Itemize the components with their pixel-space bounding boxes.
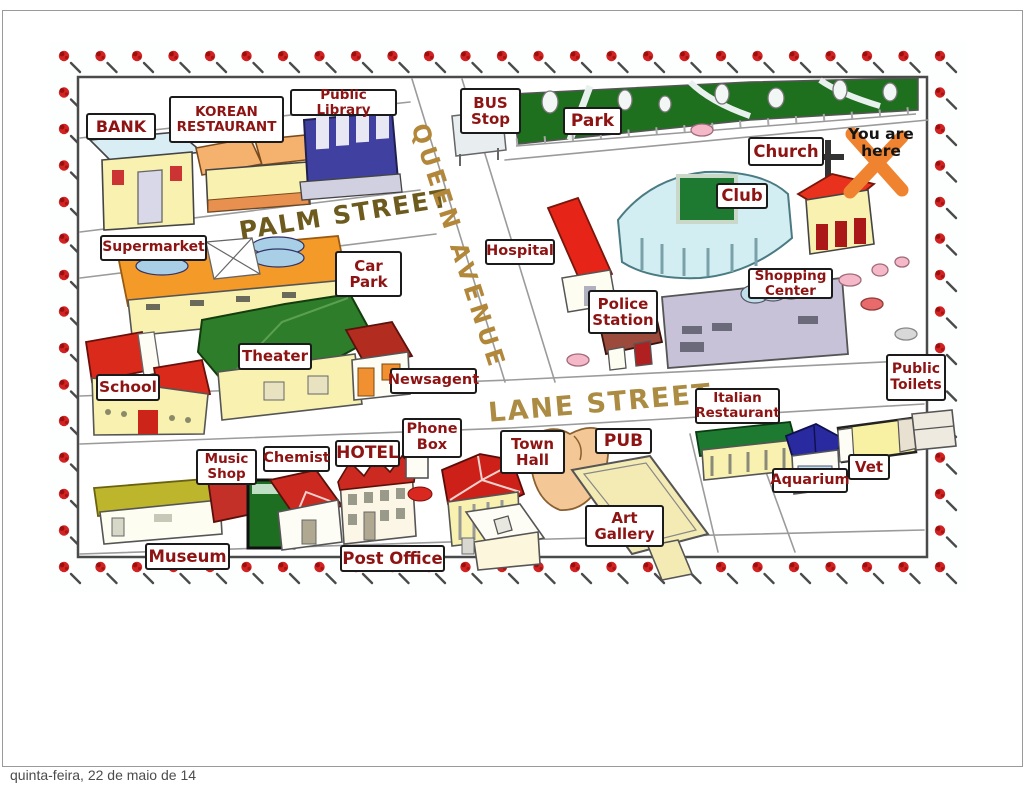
label-hospital: Hospital: [485, 239, 555, 265]
museum-building: [94, 478, 222, 544]
label-shopping-center: Shopping Center: [748, 268, 833, 299]
you-are-here-label: You are here: [843, 126, 919, 161]
hotel-building: [338, 456, 416, 544]
label-art-gallery: Art Gallery: [585, 505, 664, 547]
label-theater: Theater: [238, 343, 312, 370]
label-public-toilets: Public Toilets: [886, 354, 946, 401]
label-public-library: Public Library: [290, 89, 397, 116]
label-bank: BANK: [86, 113, 156, 140]
label-hotel: HOTEL: [335, 440, 400, 467]
label-music-shop: Music Shop: [196, 449, 257, 485]
label-post-office: Post Office: [340, 545, 445, 572]
label-school: School: [96, 374, 160, 401]
label-korean-restaurant: KOREAN RESTAURANT: [169, 96, 284, 143]
label-bus-stop: BUS Stop: [460, 88, 521, 134]
label-club: Club: [716, 183, 768, 209]
label-car-park: Car Park: [335, 251, 402, 297]
label-museum: Museum: [145, 543, 230, 570]
label-park: Park: [563, 107, 622, 135]
town-map: PALM STREET QUEEN AVENUE LANE STREET You…: [50, 42, 966, 592]
label-supermarket: Supermarket: [100, 235, 207, 261]
label-italian-restaurant: Italian Restaurant: [695, 388, 780, 424]
label-phone-box: Phone Box: [402, 418, 462, 458]
label-pub: PUB: [595, 428, 652, 454]
label-town-hall: Town Hall: [500, 430, 565, 474]
label-newsagent: Newsagent: [390, 368, 477, 394]
vet-building: [912, 410, 956, 450]
slide-date: quinta-feira, 22 de maio de 14: [10, 767, 196, 783]
label-aquarium: Aquarium: [772, 468, 848, 493]
red-car: [408, 487, 432, 501]
label-vet: Vet: [848, 454, 890, 480]
label-police-station: Police Station: [588, 290, 658, 334]
label-chemist: Chemist: [263, 446, 330, 472]
bank-building: [90, 132, 202, 230]
label-church: Church: [748, 137, 824, 166]
